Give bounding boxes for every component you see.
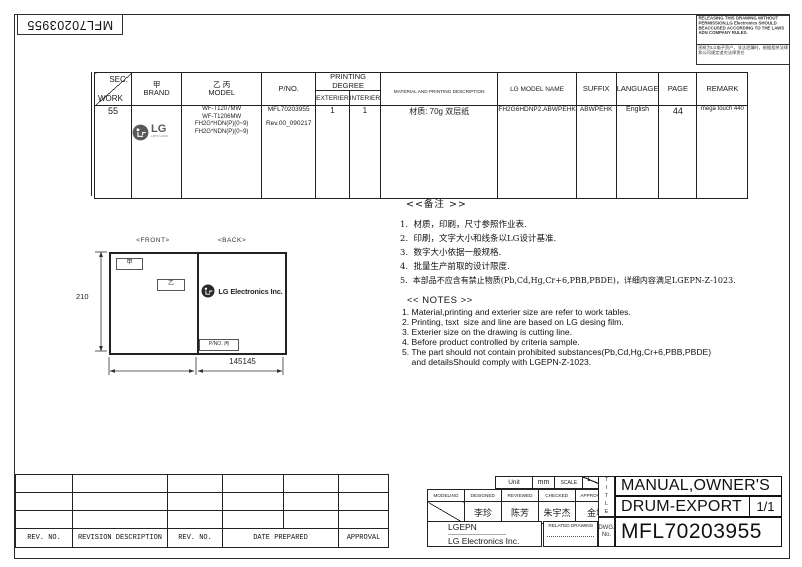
unit-value-cell: mm <box>532 476 555 489</box>
spec-cell-suffix: ABWPEHK <box>576 106 616 199</box>
approval-label: APPROVAL <box>339 529 389 548</box>
related-drawing-box: RELATED DRAWING <box>543 521 598 547</box>
back-panel-label: <BACK> <box>197 237 267 244</box>
note-cn-item: 3. 数字大小依据一般规格. <box>400 246 730 260</box>
spec-cell-remark: mega touch 440 <box>697 106 748 199</box>
revision-empty-row <box>16 511 389 529</box>
company-short: LGEPN <box>448 522 477 532</box>
sign-table: MODELING DESIGNED REVIEWED CHECKED APPRO… <box>427 489 617 524</box>
spec-cell-language: English <box>616 106 659 199</box>
spec-header-exterier: EXTERIER <box>316 91 350 106</box>
spec-cell-interier: 1 <box>349 106 380 199</box>
title-vertical-strip: TITLE <box>598 476 615 517</box>
spec-cell-material: 材质: 70g 双层纸 <box>381 106 498 199</box>
revision-empty-row <box>16 475 389 493</box>
spec-cell-page: 44 <box>659 106 697 199</box>
revision-label-row: REV. NO. REVISION DESCRIPTION REV. NO. D… <box>16 529 389 548</box>
title-line1-box: MANUAL,OWNER'S <box>615 476 782 496</box>
note-cn-item: 2. 印刷，文字大小和线条以LG设计基准. <box>400 232 730 246</box>
model-label: MODEL <box>182 89 261 98</box>
spec-header-remark: REMARK <box>697 73 748 106</box>
notes-cn: <<备注 >> 1. 材质，印刷，尺寸参照作业表. 2. 印刷，文字大小和线条以… <box>400 196 730 288</box>
company-full: LG Electronics Inc. <box>448 536 519 546</box>
warning-box-en: RELEASING THIS DRAWING WITHOUT PERMISSIO… <box>696 15 790 45</box>
date-prepared-label: DATE PREPARED <box>223 529 339 548</box>
sheet-number-cell: 1/1 <box>749 497 781 516</box>
warning-box: RELEASING THIS DRAWING WITHOUT PERMISSIO… <box>696 15 790 65</box>
sign-header-designed: DESIGNED <box>465 490 502 502</box>
note-cn-item: 5. 本部品不应含有禁止物质(Pb,Cd,Hg,Cr+6,PBB,PBDE)，详… <box>400 274 730 288</box>
spec-header-interier: INTERIER <box>349 91 380 106</box>
note-cn-item: 1. 材质，印刷，尺寸参照作业表. <box>400 218 730 232</box>
warning-box-cn: 图纸为LG电子资产，非法泄漏时，根据相关法律和公司规定追究法律责任 <box>696 45 790 65</box>
pno-rev: Rev.00_090217 <box>262 120 315 127</box>
sec-label: SEC. <box>109 75 128 84</box>
lg-logo-icon <box>132 124 149 141</box>
spec-header-suffix: SUFFIX <box>576 73 616 106</box>
title-block: Unit mm SCALE 1 1 MODELING DESIGNED REVI… <box>427 476 790 547</box>
notes-en: << NOTES >> 1. Material,printing and ext… <box>402 295 742 367</box>
revision-empty-row <box>16 493 389 511</box>
spec-header-pno: P/NO. <box>262 73 316 106</box>
notes-en-title: << NOTES >> <box>407 295 742 306</box>
doc-number-rotated: MFL70203955 <box>17 14 123 35</box>
sign-header-checked: CHECKED <box>539 490 576 502</box>
revision-description-label: REVISION DESCRIPTION <box>73 529 168 548</box>
title-line2-box: DRUM-EXPORT 1/1 <box>615 496 782 517</box>
spec-cell-models: WF-T1207MW WF-T1206MW FH2G*HDN(P)(0~9) F… <box>182 106 262 199</box>
company-box: LGEPN LG Electronics Inc. <box>427 521 542 547</box>
unit-label-cell: Unit <box>495 476 533 489</box>
company-underline <box>448 534 506 535</box>
sign-header-modeling: MODELING <box>428 490 465 502</box>
spec-cell-brand: LG Life's Good <box>132 106 182 199</box>
spec-table-double-line <box>91 72 92 196</box>
spec-header-material: MATERIAL AND PRINTING DESCRIPTION <box>381 73 498 106</box>
brand-label: BRAND <box>132 89 181 98</box>
spec-header-page: PAGE <box>659 73 697 106</box>
scale-label-cell: SCALE <box>554 476 583 489</box>
related-drawing-label: RELATED DRAWING <box>548 524 593 529</box>
dwg-number-box: MFL70203955 <box>615 517 782 547</box>
title-line2-text: DRUM-EXPORT <box>616 498 749 516</box>
spec-table: SEC. WORK 甲 BRAND 乙 丙 MODEL P/NO. PRINTI… <box>94 72 748 199</box>
spec-header-model: 乙 丙 MODEL <box>182 73 262 106</box>
spec-header-language: LANGUAGE <box>616 73 659 106</box>
model-line: WF-T1206MW <box>182 114 261 122</box>
note-cn-item: 4. 批量生产前取的设计限度. <box>400 260 730 274</box>
rev-no-label-2: REV. NO. <box>168 529 223 548</box>
spec-header-sec-work: SEC. WORK <box>95 73 132 106</box>
spec-header-brand: 甲 BRAND <box>132 73 182 106</box>
rev-no-label: REV. NO. <box>16 529 73 548</box>
model-line: FH2G*NDN(P)(0~9) <box>182 129 261 137</box>
brand-wordmark: LG <box>151 124 181 135</box>
spec-cell-exterier: 1 <box>316 106 350 199</box>
warning-text-cn: 图纸为LG电子资产，非法泄漏时，根据相关法律和公司规定追究法律责任 <box>697 45 790 58</box>
model-line: WF-T1207MW <box>182 106 261 114</box>
spec-header-lg-model-name: LG MODEL NAME <box>498 73 576 106</box>
drawing-sheet: MFL70203955 RELEASING THIS DRAWING WITHO… <box>0 0 802 567</box>
spec-cell-pno: MFL70203955 Rev.00_090217 <box>262 106 316 199</box>
brand-tagline: Life's Good <box>151 135 168 138</box>
notes-cn-title: <<备注 >> <box>406 196 730 210</box>
spec-header-printing-degree: PRINTING DEGREE <box>316 73 381 91</box>
warning-text-en: RELEASING THIS DRAWING WITHOUT PERMISSIO… <box>697 16 790 37</box>
spec-cell-work: 55 <box>95 106 132 199</box>
model-line: FH2G*HDN(P)(0~9) <box>182 121 261 129</box>
sign-header-reviewed: REVIEWED <box>502 490 539 502</box>
dim-height-label: 210 <box>76 292 89 301</box>
dwg-no-label-cell: DWG. No. <box>598 517 615 547</box>
pno-number: MFL70203955 <box>262 106 315 113</box>
spec-cell-lg-model-name: FH2G6HDNP2.ABWPEHK <box>498 106 576 199</box>
work-label: WORK <box>98 94 123 103</box>
dim-width-label: 145145 <box>215 357 270 366</box>
note-en-item: and detailsShould comply with LGEPN-Z-10… <box>402 358 742 368</box>
revision-table: REV. NO. REVISION DESCRIPTION REV. NO. D… <box>15 474 389 548</box>
related-drawing-dotted-line <box>547 536 595 537</box>
front-panel-label: <FRONT> <box>118 237 188 244</box>
